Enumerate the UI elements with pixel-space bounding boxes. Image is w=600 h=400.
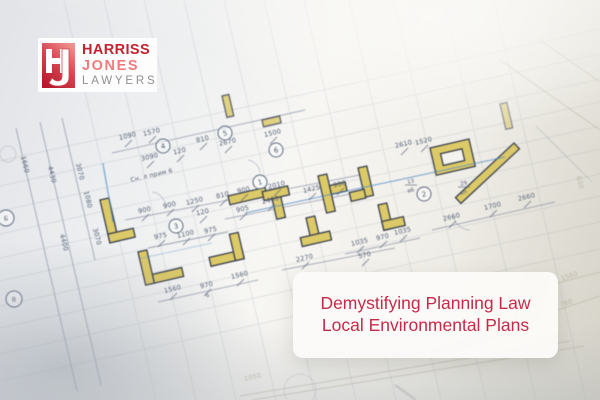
title-card: Demystifying Planning Law Local Environm… <box>293 272 558 358</box>
dimension-label: 810 <box>215 190 229 201</box>
dimension-tick <box>240 213 247 220</box>
detail-tag-bottom: в6 <box>407 187 415 194</box>
dimension-tick <box>524 201 531 208</box>
dimension-label: 4400 <box>58 233 70 252</box>
dimension-tick <box>183 238 190 245</box>
dimension-label: 1560 <box>163 283 182 295</box>
dimension-tick <box>142 214 149 221</box>
logo: HARRISS JONES LAWYERS <box>38 38 157 92</box>
logo-name-lawyers: LAWYERS <box>82 76 157 88</box>
hero-image: 1090157012030908102670150026101520900900… <box>0 0 600 400</box>
detail-tag-top: 6 <box>205 293 210 300</box>
dimension-label: 970 <box>375 232 389 243</box>
axis-letter: Б <box>4 215 8 223</box>
dimension-label: 760 <box>559 297 574 309</box>
dimension-tick <box>177 155 184 162</box>
dimension-label: 1425 <box>302 183 321 195</box>
dimension-label: 1660 <box>19 155 31 174</box>
dimension-label: 3070 <box>91 227 103 246</box>
dimension-label: 570 <box>357 250 371 261</box>
dimension-label: 1700 <box>483 200 502 212</box>
title-line-2: Local Environmental Plans <box>322 315 529 337</box>
hatch-grid <box>536 126 592 182</box>
dimension-label: 970 <box>199 280 213 291</box>
dimension-label: 1560 <box>560 270 579 283</box>
dimension-label: 1570 <box>142 126 161 138</box>
dimension-label: 900 <box>162 200 176 211</box>
dimension-label: 3090 <box>140 151 159 163</box>
dimension-label: 120 <box>195 207 209 218</box>
dimension-tick <box>167 209 174 216</box>
dimension-label: 810 <box>195 134 209 145</box>
dimension-tick <box>225 146 232 153</box>
plan-note: Сн. л прим 6 <box>130 167 174 184</box>
dimension-tick <box>401 148 408 155</box>
dimension-tick <box>200 143 207 150</box>
axis-letter: В <box>12 296 16 304</box>
dimension-label: 2660 <box>442 211 461 223</box>
dimension-label: 1050 <box>243 371 262 382</box>
title-line-1: Demystifying Planning Law <box>320 293 530 315</box>
dimension-label: 1500 <box>263 127 282 139</box>
dimension-tick <box>421 145 428 152</box>
dimension-tick <box>237 279 244 286</box>
logo-name-harriss: HARRISS <box>82 43 157 58</box>
dimension-label: 120 <box>172 146 186 157</box>
dimension-tick <box>158 240 165 247</box>
dimension-label: 2610 <box>394 138 413 150</box>
logo-name-jones: JONES <box>82 59 157 74</box>
dimension-label: 1080 <box>82 190 94 209</box>
logo-wordmark: HARRISS JONES LAWYERS <box>82 43 157 87</box>
dimension-tick <box>220 199 227 206</box>
dimension-label: 2270 <box>295 252 314 264</box>
dimension-label: 1560 <box>230 269 249 281</box>
dimension-label: 2660 <box>517 191 536 203</box>
dimension-label: 600 <box>574 175 585 190</box>
dimension-tick <box>362 259 369 266</box>
dimension-label: 900 <box>137 205 151 216</box>
dimension-label: 1520 <box>414 135 433 147</box>
dimension-label: 1090 <box>118 130 137 142</box>
logo-monogram <box>42 43 75 88</box>
dimension-label: 4430 <box>46 165 58 184</box>
dimension-tick <box>147 161 154 168</box>
dimension-label: 975 <box>153 231 167 242</box>
dimension-label: 1035 <box>350 236 369 248</box>
dimension-tick <box>200 216 207 223</box>
dimension-tick <box>149 136 156 143</box>
dimension-tick <box>125 140 132 147</box>
